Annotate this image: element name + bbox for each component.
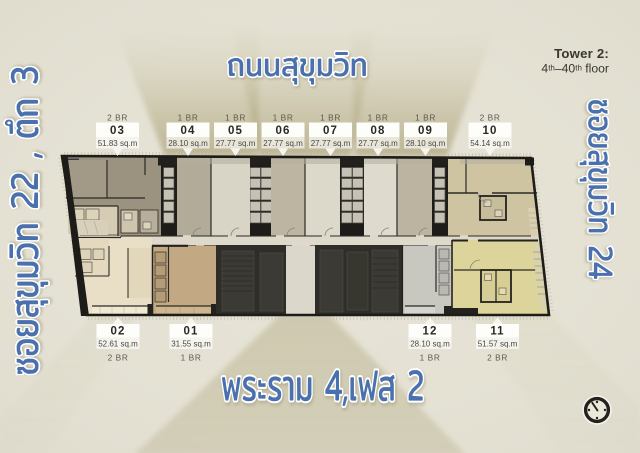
svg-text:1 BR: 1 BR <box>320 113 341 123</box>
svg-text:27.77 sq.m: 27.77 sq.m <box>311 139 351 148</box>
svg-text:52.61 sq.m: 52.61 sq.m <box>98 340 138 349</box>
svg-text:1 BR: 1 BR <box>225 113 246 123</box>
svg-text:1 BR: 1 BR <box>420 353 441 363</box>
svg-text:27.77 sq.m: 27.77 sq.m <box>263 139 303 148</box>
svg-text:28.10 sq.m: 28.10 sq.m <box>410 340 450 349</box>
svg-text:09: 09 <box>418 125 433 137</box>
svg-text:2 BR: 2 BR <box>480 113 501 123</box>
svg-text:28.10 sq.m: 28.10 sq.m <box>406 139 446 148</box>
svg-text:Tower 2:: Tower 2: <box>554 46 609 61</box>
svg-text:28.10 sq.m: 28.10 sq.m <box>168 139 208 148</box>
svg-text:04: 04 <box>181 125 196 137</box>
svg-text:51.83 sq.m: 51.83 sq.m <box>98 139 138 148</box>
svg-text:1 BR: 1 BR <box>178 113 199 123</box>
svg-text:06: 06 <box>276 125 291 137</box>
svg-text:54.14 sq.m: 54.14 sq.m <box>470 139 510 148</box>
svg-text:12: 12 <box>423 326 438 338</box>
svg-text:1 BR: 1 BR <box>368 113 389 123</box>
svg-text:01: 01 <box>184 326 199 338</box>
svg-text:02: 02 <box>111 326 126 338</box>
svg-text:07: 07 <box>323 125 338 137</box>
svg-text:2 BR: 2 BR <box>487 353 508 363</box>
svg-text:27.77 sq.m: 27.77 sq.m <box>216 139 256 148</box>
svg-text:27.77 sq.m: 27.77 sq.m <box>358 139 398 148</box>
svg-text:2 BR: 2 BR <box>107 113 128 123</box>
svg-text:11: 11 <box>490 326 504 338</box>
svg-text:10: 10 <box>483 125 498 137</box>
svg-text:2 BR: 2 BR <box>108 353 129 363</box>
svg-text:31.55 sq.m: 31.55 sq.m <box>171 340 211 349</box>
svg-text:05: 05 <box>228 125 243 137</box>
svg-text:03: 03 <box>110 125 125 137</box>
svg-text:1 BR: 1 BR <box>415 113 436 123</box>
svg-text:1 BR: 1 BR <box>273 113 294 123</box>
svg-text:1 BR: 1 BR <box>181 353 202 363</box>
svg-text:51.57 sq.m: 51.57 sq.m <box>478 340 518 349</box>
svg-text:08: 08 <box>371 125 386 137</box>
